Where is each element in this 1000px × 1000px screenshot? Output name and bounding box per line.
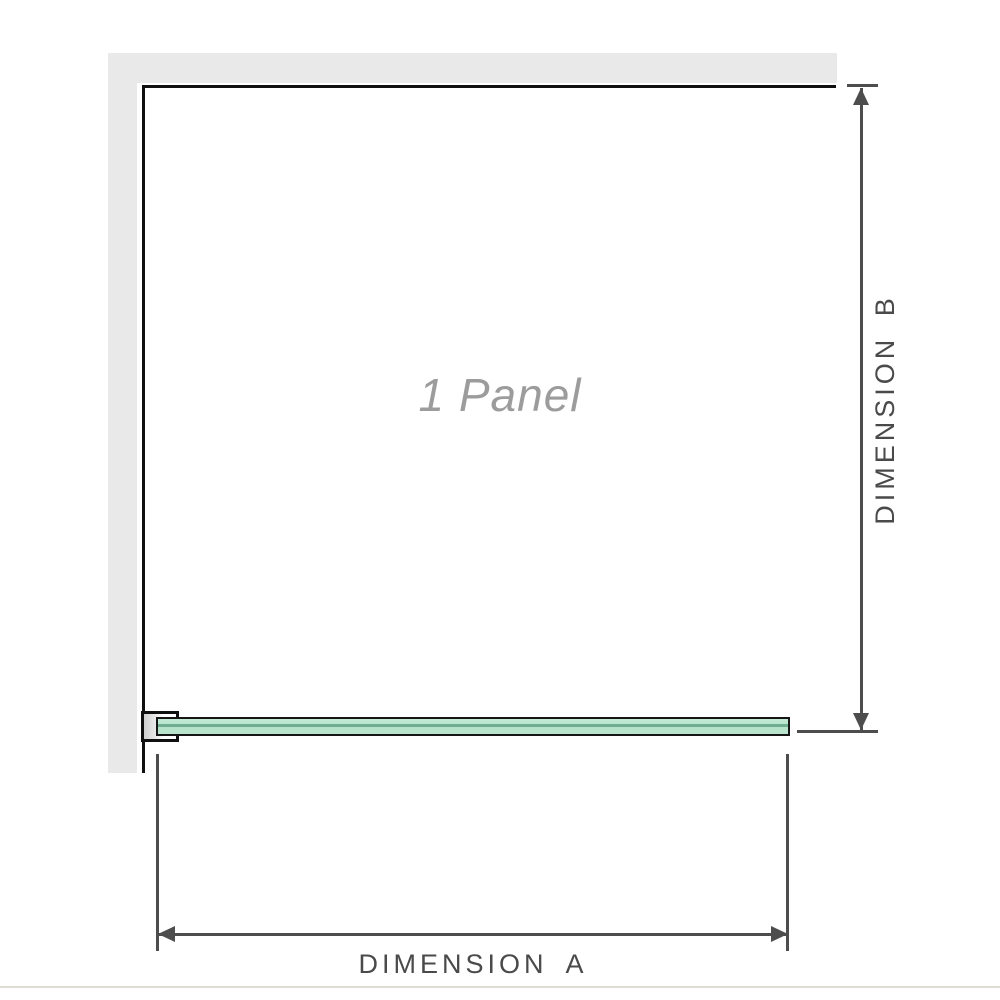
arrowhead-right-icon <box>771 926 788 942</box>
dimension-a-line <box>158 933 788 936</box>
dimension-b-label: DIMENSION B <box>867 88 903 731</box>
dimension-b-line <box>860 88 863 731</box>
dimension-a-extension-left <box>156 754 159 951</box>
dimension-a-extension-right <box>786 754 789 951</box>
panel-count-label: 1 Panel <box>300 368 700 422</box>
arrowhead-left-icon <box>158 926 175 942</box>
dimension-b-tick-bottom <box>797 730 878 733</box>
shower-panel-dimension-diagram: 1 Panel DIMENSION B DIMENSION A <box>0 0 1000 1000</box>
wall-left <box>108 53 137 773</box>
page-divider <box>0 986 1000 988</box>
glass-stripe <box>158 724 788 727</box>
wall-top <box>108 53 837 83</box>
dimension-a-label: DIMENSION A <box>158 946 788 982</box>
wall-inner-edge-left <box>142 85 145 773</box>
glass-panel <box>156 717 790 736</box>
dimension-b-tick-top <box>847 84 878 87</box>
wall-inner-edge-top <box>142 85 836 88</box>
